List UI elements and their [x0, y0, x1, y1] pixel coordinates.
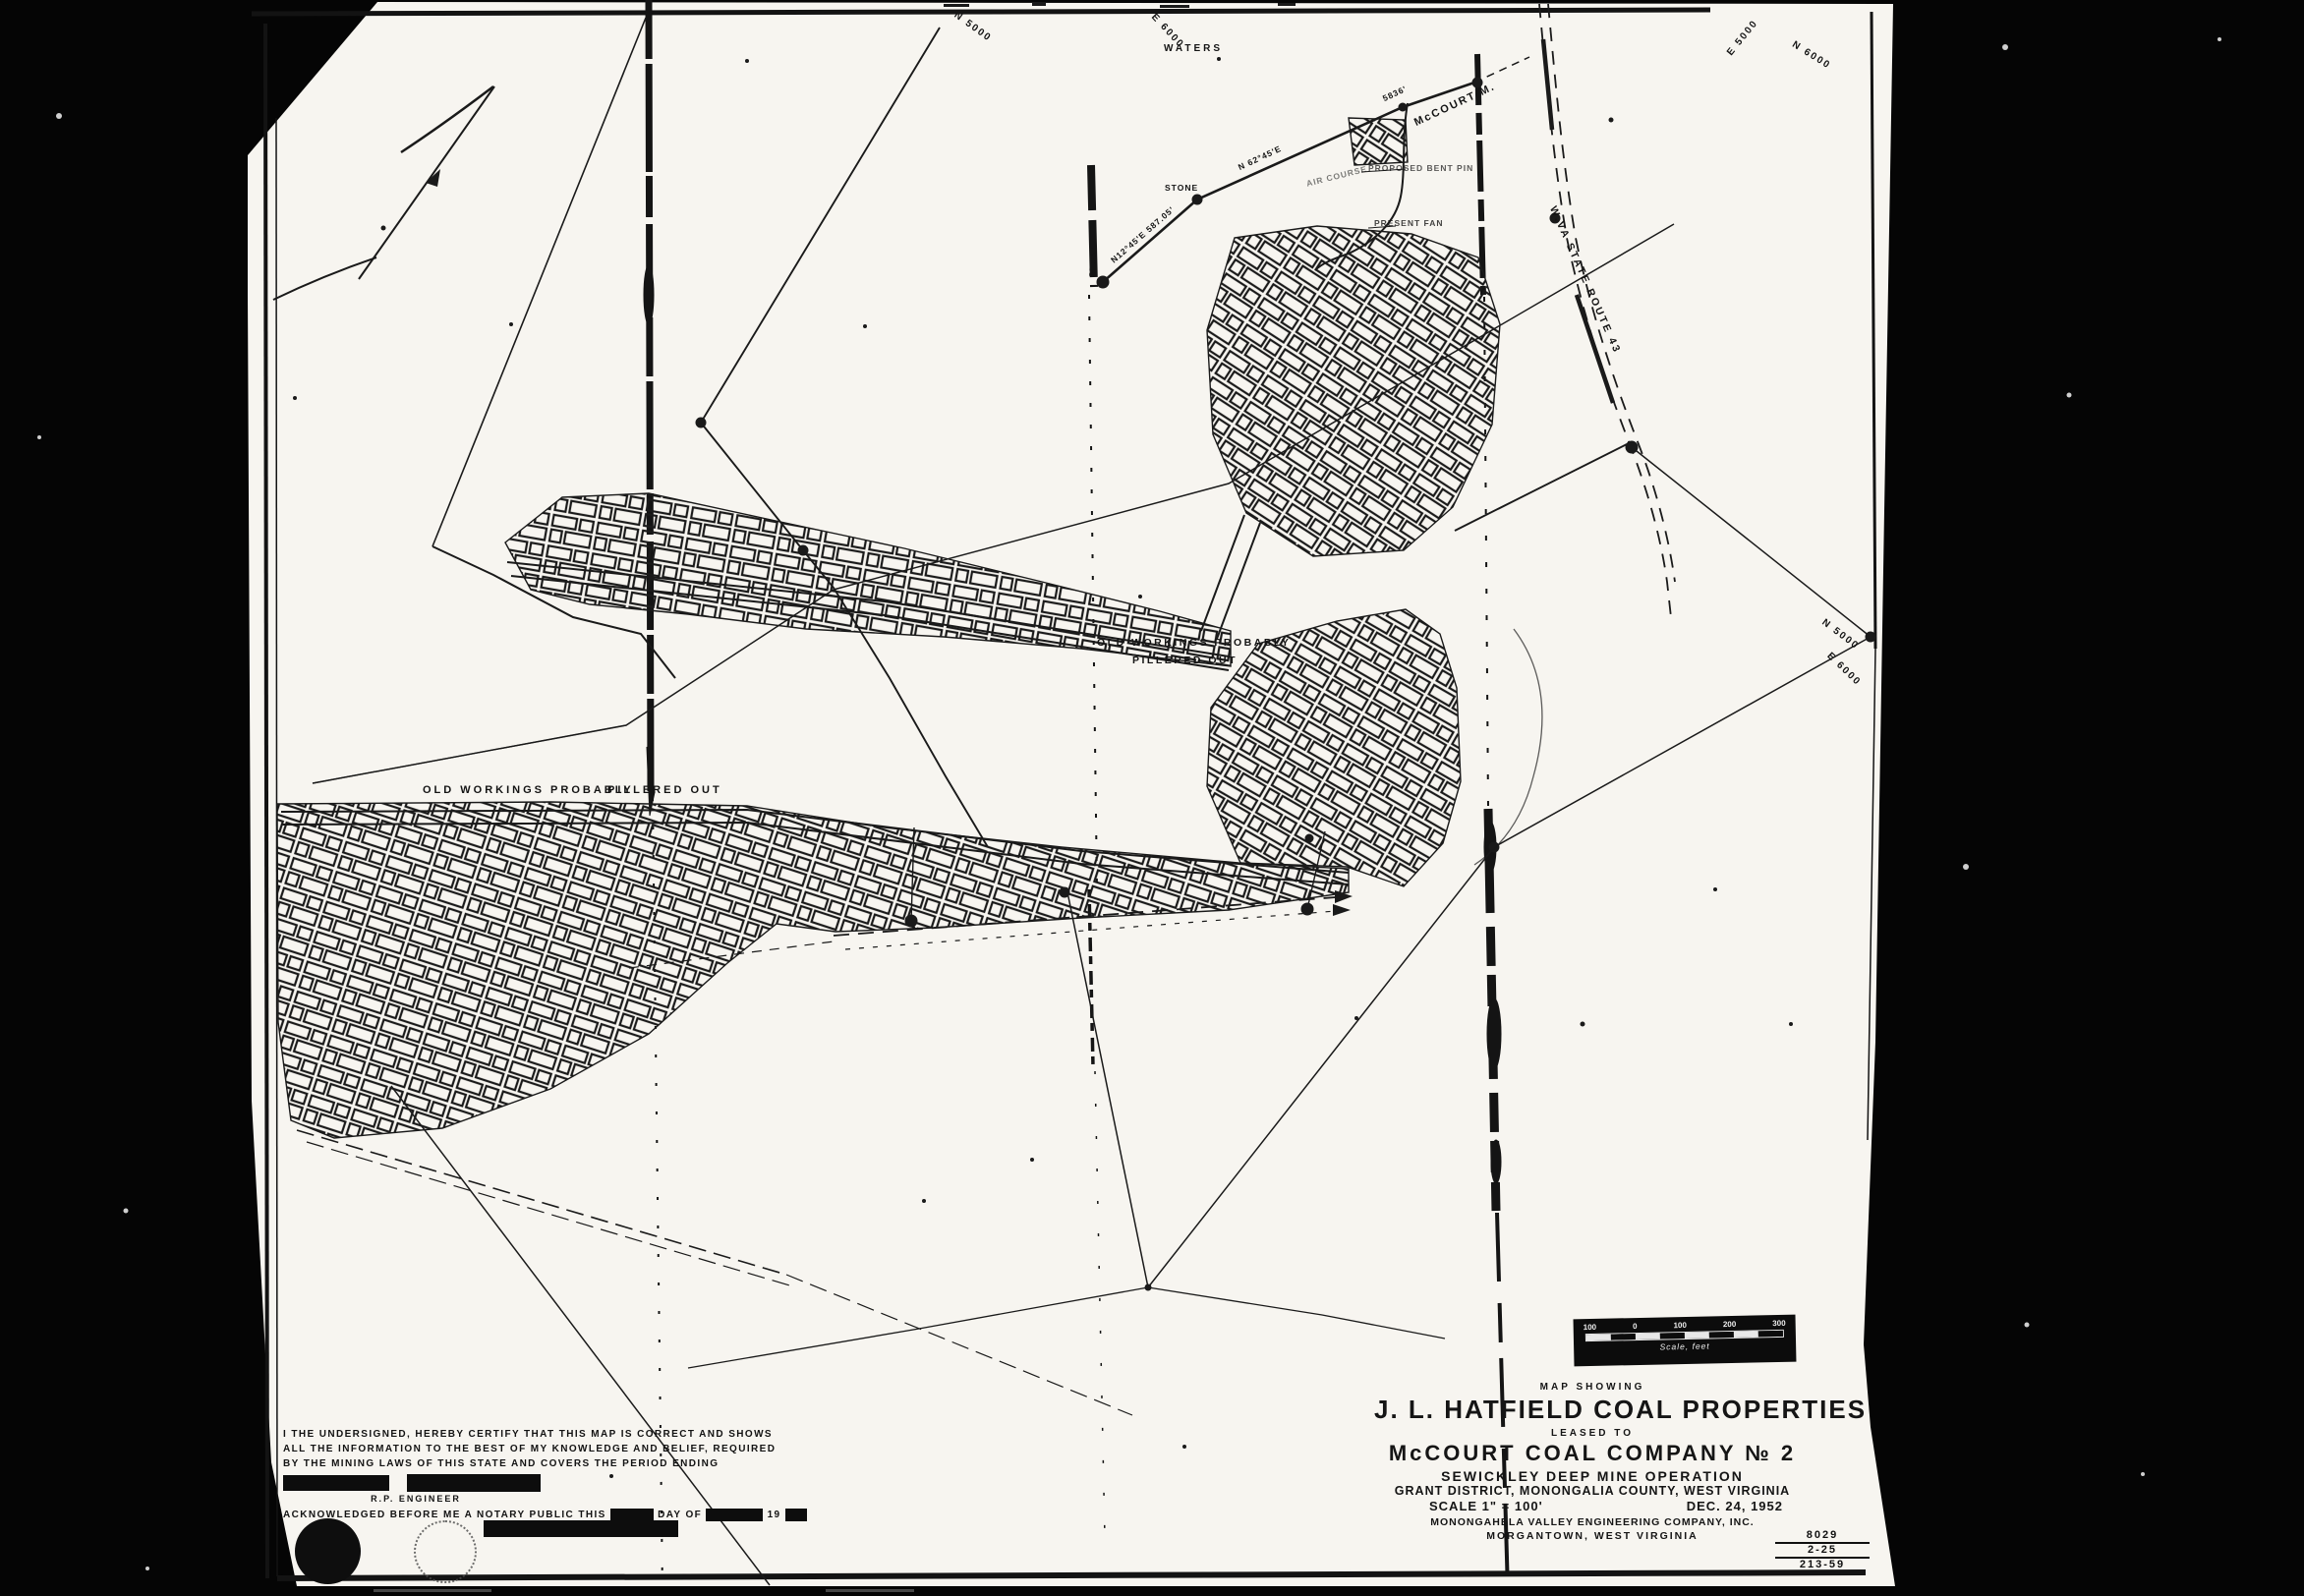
- title-location: GRANT DISTRICT, MONONGALIA COUNTY, WEST …: [1374, 1484, 1811, 1498]
- cert-line-3: BY THE MINING LAWS OF THIS STATE AND COV…: [283, 1456, 745, 1471]
- title-scale: SCALE 1" = 100': [1429, 1499, 1543, 1513]
- redacted-signature-2: [407, 1474, 541, 1492]
- notary-seal-filled: [295, 1518, 361, 1584]
- title-city: MORGANTOWN, WEST VIRGINIA: [1374, 1530, 1811, 1542]
- scale-tick: 0: [1633, 1322, 1638, 1331]
- title-operation: SEWICKLEY DEEP MINE OPERATION: [1374, 1468, 1811, 1484]
- title-block: MAP SHOWING J. L. HATFIELD COAL PROPERTI…: [1374, 1382, 1811, 1542]
- label-stone-horizontal: STONE: [1165, 183, 1198, 193]
- cert-line-2: ALL THE INFORMATION TO THE BEST OF MY KN…: [283, 1442, 745, 1456]
- title-eyebrow: MAP SHOWING: [1374, 1382, 1811, 1393]
- label-old-workings-left-2: PILLERED OUT: [607, 784, 722, 796]
- label-stone-vertical: STONE: [1087, 244, 1098, 277]
- redacted-notary-month: [706, 1509, 763, 1521]
- title-company: McCOURT COAL COMPANY № 2: [1374, 1441, 1811, 1466]
- scale-tick: 100: [1584, 1323, 1597, 1332]
- title-firm: MONONGAHELA VALLEY ENGINEERING COMPANY, …: [1374, 1516, 1811, 1528]
- label-proposed-pin: PROPOSED BENT PIN: [1368, 163, 1473, 173]
- cert-notary-dayof: DAY OF: [658, 1510, 702, 1520]
- label-waters: WATERS: [1164, 43, 1223, 54]
- label-old-workings-center-2: PILLERED OUT: [1132, 655, 1238, 666]
- scale-tick: 100: [1673, 1321, 1687, 1330]
- sheet-number-2: 2-25: [1775, 1544, 1870, 1559]
- scanned-mine-map: N 5000 E 6000 WATERS E 5000 N 6000 N 500…: [0, 0, 2304, 1596]
- sheet-number-1: 8029: [1775, 1529, 1870, 1544]
- cert-notary-year: 19: [768, 1510, 781, 1520]
- redacted-name-bar: [484, 1520, 678, 1537]
- cert-line-1: I THE UNDERSIGNED, HEREBY CERTIFY THAT T…: [283, 1427, 745, 1442]
- redacted-signature-1: [283, 1475, 389, 1491]
- sheet-number-3: 213-59: [1775, 1559, 1870, 1571]
- edge-smudge: [374, 1589, 491, 1592]
- notary-stamp-dotted: [414, 1520, 477, 1583]
- scale-tick: 300: [1772, 1319, 1786, 1328]
- redacted-notary-year: [785, 1509, 807, 1521]
- corner-sheet-numbers: 8029 2-25 213-59: [1775, 1529, 1870, 1571]
- graphic-scale-bar: 100 0 100 200 300 Scale, feet: [1574, 1315, 1797, 1367]
- mine-workings-opening: [1349, 118, 1408, 165]
- scale-bar-caption: Scale, feet: [1574, 1339, 1796, 1354]
- label-old-workings-center-1: OLD WORKINGS PROBABLY: [1097, 637, 1291, 649]
- title-leased-to: LEASED TO: [1374, 1428, 1811, 1439]
- edge-smudge: [826, 1589, 914, 1592]
- mine-map-canvas: [0, 0, 2304, 1596]
- label-present-fan: PRESENT FAN: [1374, 218, 1444, 228]
- label-old-workings-left-1: OLD WORKINGS PROBABLY: [423, 784, 634, 796]
- map-title: J. L. HATFIELD COAL PROPERTIES: [1374, 1395, 1811, 1425]
- cert-engineer-title: R.P. ENGINEER: [283, 1494, 548, 1504]
- scale-tick: 200: [1723, 1320, 1737, 1329]
- title-date: DEC. 24, 1952: [1687, 1499, 1783, 1513]
- certification-block: I THE UNDERSIGNED, HEREBY CERTIFY THAT T…: [283, 1427, 745, 1521]
